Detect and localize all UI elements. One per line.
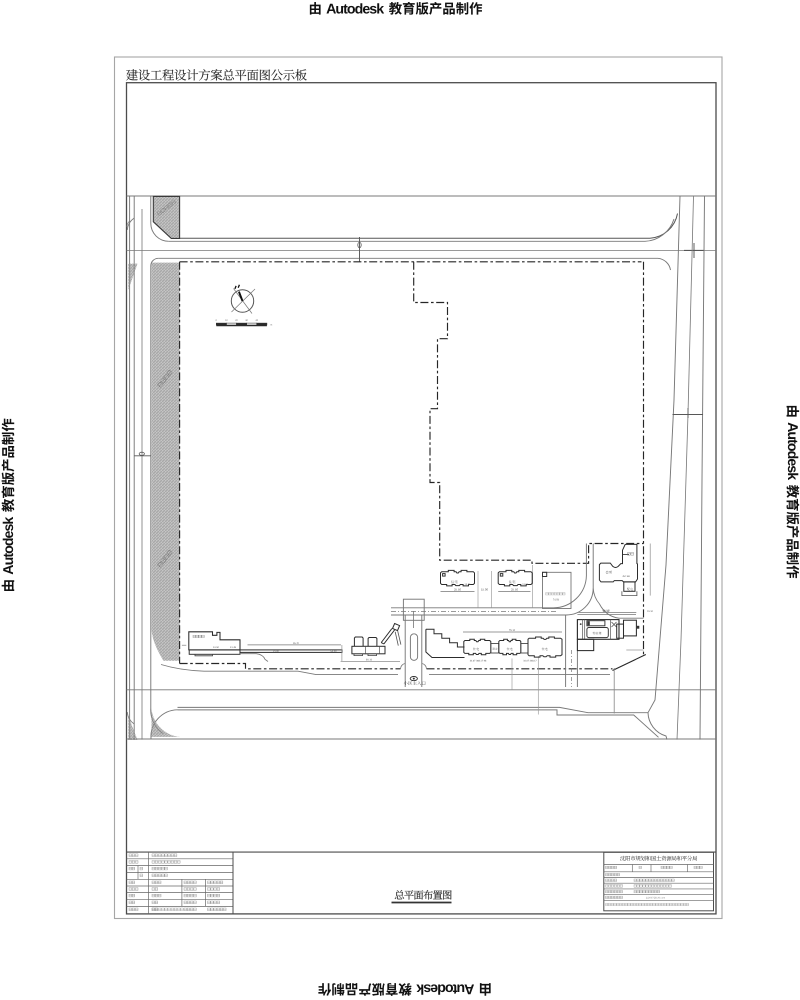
svg-text:75.10: 75.10 — [509, 629, 516, 632]
svg-text:Autodesk: Autodesk — [784, 422, 800, 480]
svg-text:m: m — [270, 323, 272, 326]
svg-text:25.50: 25.50 — [511, 588, 518, 592]
svg-text:34.07 368.17: 34.07 368.17 — [523, 660, 537, 663]
svg-text:jcj2007@126.com: jcj2007@126.com — [645, 897, 665, 900]
svg-text:20: 20 — [235, 319, 238, 322]
svg-text:15.00: 15.00 — [481, 588, 488, 592]
svg-text:Autodesk: Autodesk — [416, 980, 474, 996]
svg-text:Autodesk: Autodesk — [1, 517, 17, 575]
svg-text:74.50: 74.50 — [553, 599, 560, 602]
svg-text:15.10: 15.10 — [647, 610, 653, 613]
svg-text:13.05: 13.05 — [465, 583, 472, 586]
svg-text:Autodesk: Autodesk — [326, 1, 384, 17]
svg-text:0: 0 — [216, 319, 218, 322]
svg-text:34.07 368.17 98: 34.07 368.17 98 — [470, 660, 487, 663]
svg-text:41.48: 41.48 — [230, 646, 237, 649]
svg-text:90.10: 90.10 — [366, 658, 373, 661]
svg-text:21.00: 21.00 — [273, 650, 280, 653]
svg-text:51.50: 51.50 — [213, 646, 220, 649]
svg-text:13.05: 13.05 — [522, 583, 529, 586]
svg-text:54.00: 54.00 — [331, 650, 338, 653]
svg-text:35.10: 35.10 — [603, 610, 610, 613]
svg-text:25.50: 25.50 — [454, 588, 461, 592]
svg-text:30: 30 — [245, 319, 248, 322]
svg-text:95.70: 95.70 — [293, 642, 300, 645]
svg-text:457.88: 457.88 — [622, 575, 630, 578]
svg-text:10: 10 — [225, 319, 228, 322]
svg-text:40: 40 — [255, 319, 258, 322]
